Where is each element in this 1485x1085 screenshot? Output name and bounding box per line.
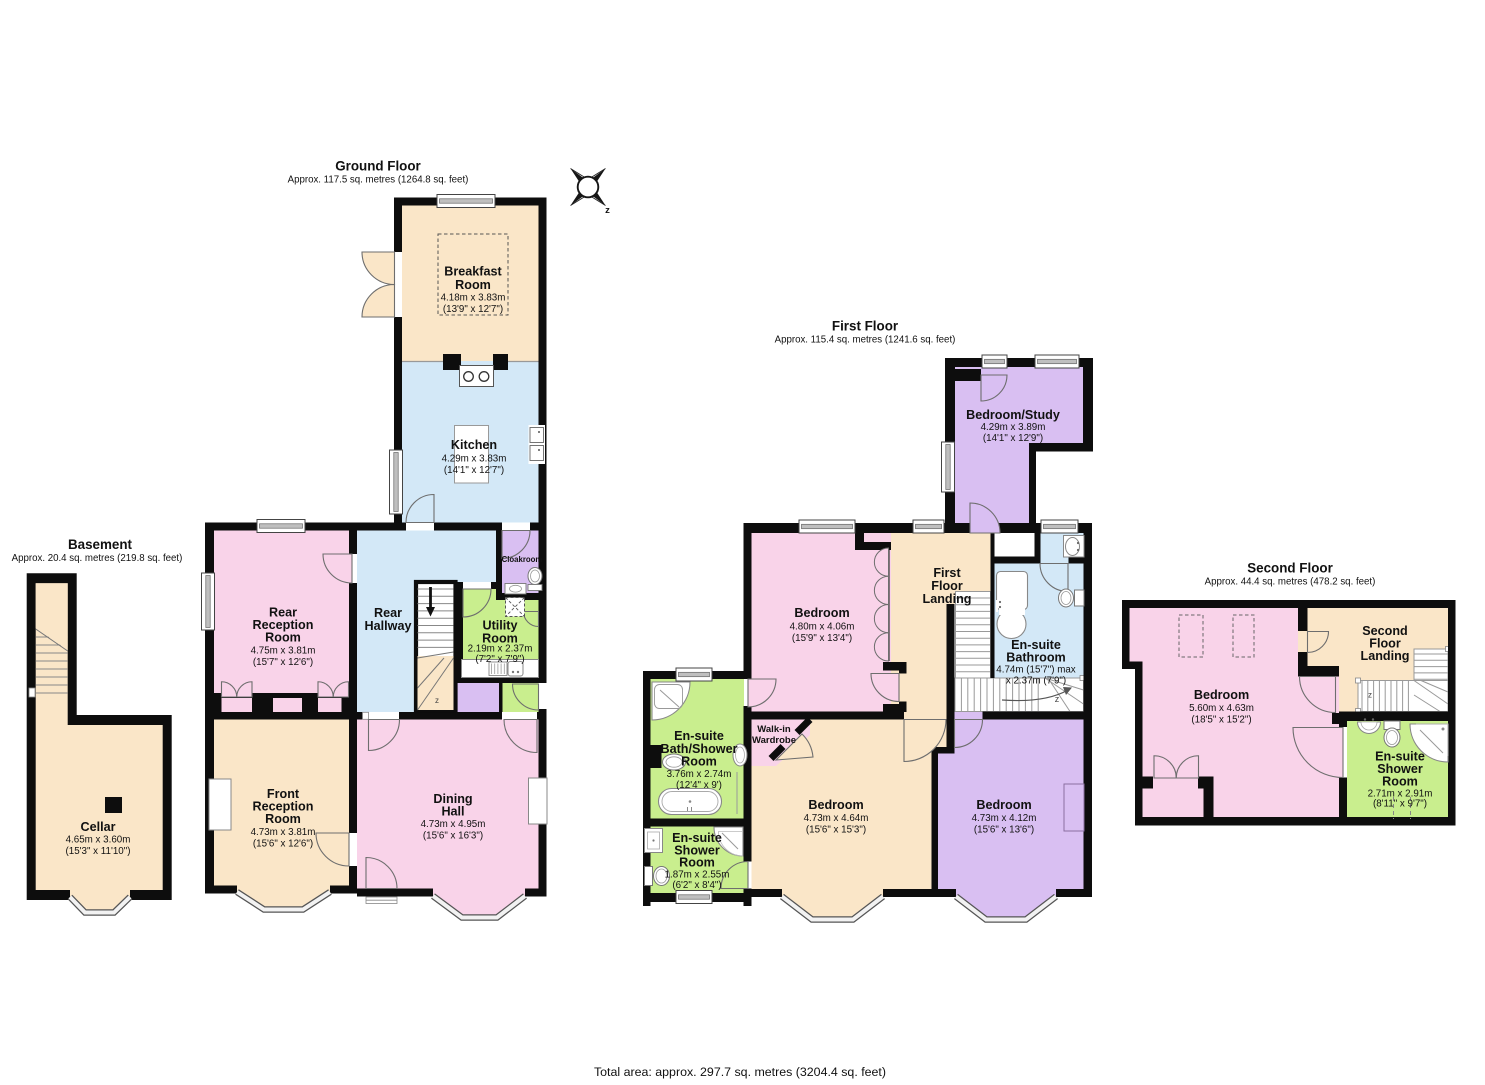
svg-text:Rear: Rear [374,606,402,620]
svg-text:4.80m x 4.06m: 4.80m x 4.06m [790,622,855,633]
svg-text:1.87m x 2.55m: 1.87m x 2.55m [665,870,730,881]
svg-text:Bedroom: Bedroom [1194,688,1249,702]
svg-text:Approx. 117.5 sq. metres (1264: Approx. 117.5 sq. metres (1264.8 sq. fee… [288,175,469,186]
svg-text:Cellar: Cellar [80,820,115,834]
svg-text:Kitchen: Kitchen [451,438,497,452]
svg-text:Wardrobe: Wardrobe [752,735,796,746]
svg-text:Floor: Floor [931,579,963,593]
svg-text:Breakfast: Breakfast [444,265,502,279]
svg-text:Bedroom: Bedroom [976,798,1031,812]
svg-text:4.73m x 4.95m: 4.73m x 4.95m [421,819,486,830]
svg-text:(15'6" x 13'6"): (15'6" x 13'6") [974,825,1034,836]
svg-text:Room: Room [265,812,301,826]
svg-text:4.18m x 3.83m: 4.18m x 3.83m [441,293,506,304]
svg-text:4.73m x 4.64m: 4.73m x 4.64m [804,813,869,824]
svg-text:4.73m x 3.81m: 4.73m x 3.81m [251,827,316,838]
svg-text:4.73m x 4.12m: 4.73m x 4.12m [972,813,1037,824]
svg-text:Hallway: Hallway [365,619,412,633]
svg-text:En-suite: En-suite [674,729,724,743]
svg-text:Landing: Landing [1361,649,1410,663]
svg-text:(14'1" x 12'7"): (14'1" x 12'7") [444,465,504,476]
svg-text:Approx. 44.4 sq. metres (478.2: Approx. 44.4 sq. metres (478.2 sq. feet) [1205,577,1376,588]
svg-text:4.74m (15'7") max: 4.74m (15'7") max [996,665,1076,676]
svg-text:(14'1" x 12'9"): (14'1" x 12'9") [983,433,1043,444]
svg-text:4.75m x 3.81m: 4.75m x 3.81m [251,646,316,657]
svg-text:x 2.37m (7'9"): x 2.37m (7'9") [1006,676,1066,687]
svg-text:Cloakroom: Cloakroom [502,555,543,564]
svg-text:Bathroom: Bathroom [1006,651,1065,665]
svg-text:(7'2" x 7'9"): (7'2" x 7'9") [475,654,524,665]
svg-text:Landing: Landing [923,592,972,606]
svg-text:5.60m x 4.63m: 5.60m x 4.63m [1189,703,1254,714]
svg-text:(18'5" x 15'2"): (18'5" x 15'2") [1191,715,1251,726]
svg-text:Total area: approx. 297.7 sq.: Total area: approx. 297.7 sq. metres (32… [594,1065,886,1079]
svg-text:First Floor: First Floor [832,319,899,334]
svg-text:3.76m x 2.74m: 3.76m x 2.74m [667,769,732,780]
svg-text:4.29m x 3.83m: 4.29m x 3.83m [442,454,507,465]
svg-text:Approx. 20.4 sq. metres (219.8: Approx. 20.4 sq. metres (219.8 sq. feet) [12,553,183,564]
svg-text:(8'11" x 9'7"): (8'11" x 9'7") [1373,799,1427,810]
svg-text:Approx. 115.4 sq. metres (1241: Approx. 115.4 sq. metres (1241.6 sq. fee… [775,335,956,346]
svg-text:Basement: Basement [68,537,133,552]
svg-text:Utility: Utility [483,619,518,633]
svg-text:Bedroom: Bedroom [794,606,849,620]
svg-text:z: z [1055,694,1060,704]
svg-text:(15'6" x 16'3"): (15'6" x 16'3") [423,831,483,842]
svg-text:Second Floor: Second Floor [1247,561,1333,576]
svg-text:Room: Room [679,856,715,870]
svg-text:z: z [605,205,610,216]
svg-text:(15'3" x 11'10"): (15'3" x 11'10") [66,846,131,857]
svg-text:z: z [435,696,439,705]
svg-text:4.29m x 3.89m: 4.29m x 3.89m [981,422,1046,433]
svg-text:Hall: Hall [441,805,464,819]
svg-text:4.65m x 3.60m: 4.65m x 3.60m [66,835,131,846]
svg-text:2.19m x 2.37m: 2.19m x 2.37m [468,644,533,655]
svg-text:(6'2" x 8'4"): (6'2" x 8'4") [672,880,721,891]
svg-text:(13'9" x 12'7"): (13'9" x 12'7") [443,304,503,315]
svg-text:Walk-in: Walk-in [757,724,791,735]
svg-text:z: z [1368,691,1372,700]
svg-text:Room: Room [681,755,717,769]
svg-text:First: First [933,566,961,580]
svg-text:Room: Room [1382,775,1418,789]
svg-text:(15'6" x 15'3"): (15'6" x 15'3") [806,825,866,836]
svg-text:Room: Room [265,631,301,645]
svg-text:Bedroom: Bedroom [808,798,863,812]
svg-text:(15'9" x 13'4"): (15'9" x 13'4") [792,633,852,644]
svg-text:(12'4" x 9'): (12'4" x 9') [676,780,722,791]
svg-text:(15'6" x 12'6"): (15'6" x 12'6") [253,839,313,850]
svg-text:(15'7" x 12'6"): (15'7" x 12'6") [253,657,313,668]
svg-text:Ground Floor: Ground Floor [335,159,421,174]
svg-text:Room: Room [455,278,491,292]
svg-text:Bedroom/Study: Bedroom/Study [966,408,1060,422]
